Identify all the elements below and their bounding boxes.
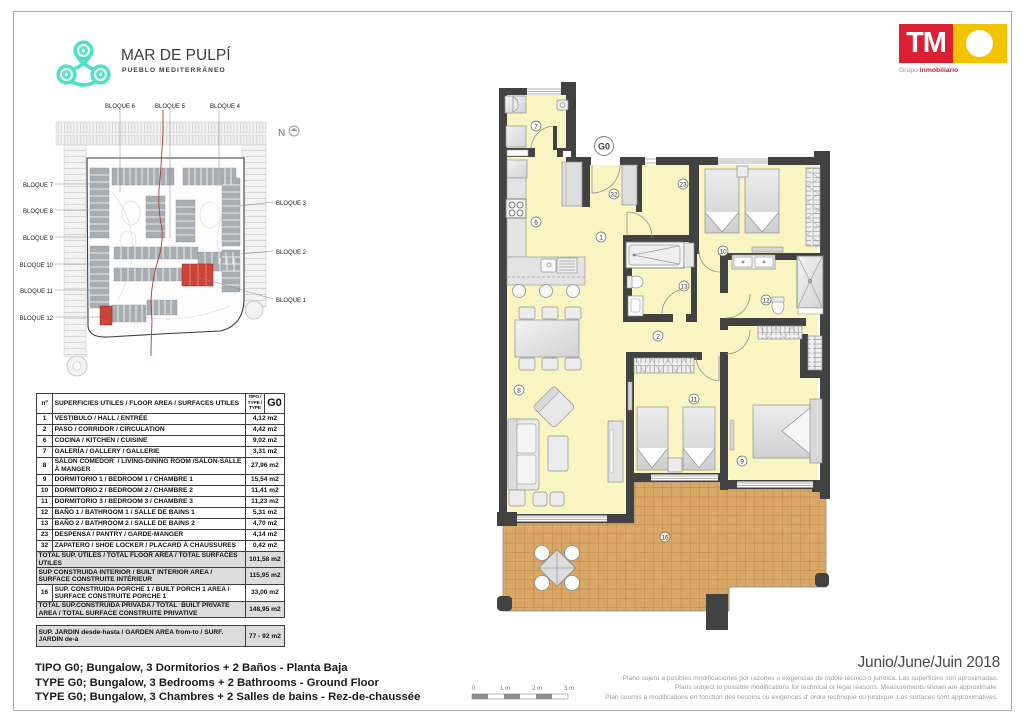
svg-text:BLOQUE 2: BLOQUE 2	[276, 250, 307, 256]
svg-text:N: N	[278, 128, 285, 139]
svg-text:BLOQUE 11: BLOQUE 11	[20, 289, 54, 295]
svg-text:BLOQUE 8: BLOQUE 8	[23, 209, 54, 215]
svg-text:G0: G0	[598, 142, 610, 152]
svg-text:BLOQUE 7: BLOQUE 7	[23, 183, 54, 189]
svg-text:16: 16	[661, 535, 669, 542]
svg-text:BLOQUE 5: BLOQUE 5	[155, 104, 186, 110]
svg-text:2: 2	[656, 334, 660, 341]
svg-text:BLOQUE 3: BLOQUE 3	[276, 201, 307, 207]
svg-text:BLOQUE 12: BLOQUE 12	[20, 316, 54, 322]
svg-text:23: 23	[679, 182, 687, 189]
svg-text:9: 9	[740, 459, 744, 466]
svg-text:7: 7	[534, 124, 538, 131]
svg-text:BLOQUE 4: BLOQUE 4	[210, 104, 241, 110]
svg-text:BLOQUE 1: BLOQUE 1	[276, 298, 307, 304]
svg-text:8: 8	[517, 388, 521, 395]
svg-text:13: 13	[680, 284, 688, 291]
svg-text:11: 11	[691, 397, 698, 404]
svg-text:BLOQUE 6: BLOQUE 6	[105, 104, 136, 110]
svg-text:1: 1	[599, 235, 603, 242]
svg-text:6: 6	[534, 220, 538, 227]
svg-text:12: 12	[762, 298, 770, 305]
svg-text:10: 10	[719, 249, 727, 256]
svg-text:BLOQUE 10: BLOQUE 10	[20, 263, 54, 269]
svg-text:32: 32	[610, 192, 618, 199]
svg-text:BLOQUE 9: BLOQUE 9	[23, 236, 54, 242]
